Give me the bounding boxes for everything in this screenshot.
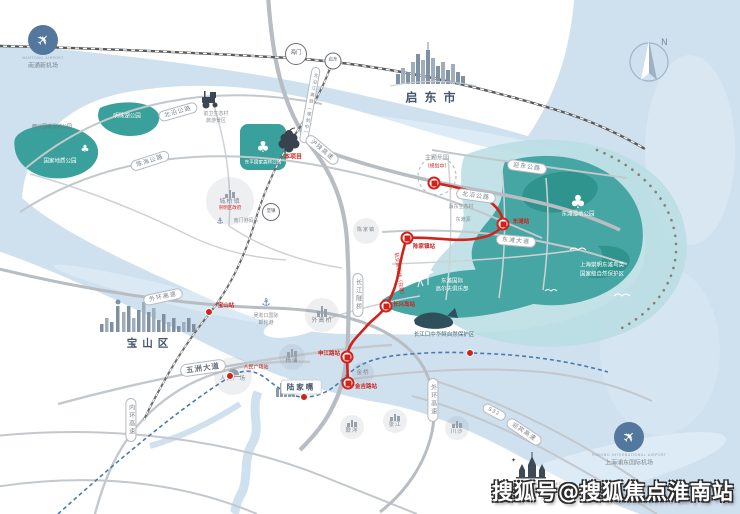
station-label: 申江路站 — [318, 351, 340, 357]
road-pill: 长江隧桥 — [352, 273, 363, 317]
metro-station-themepark — [428, 177, 441, 190]
pudong-airport-icon: ✈ — [614, 422, 644, 452]
metro-station-jinjilu — [342, 377, 355, 390]
station-qidong: 启东 — [325, 53, 342, 70]
tree-icon: ♣ — [81, 144, 90, 155]
town-baozhen: 堡镇 — [262, 203, 280, 221]
zone-label: 杨浦 — [285, 358, 298, 364]
qianwei-label-2: 旅游景区 — [206, 118, 226, 124]
wusongkou-label-2: 邮轮港 — [258, 320, 273, 326]
poi-dongtanyuan: 东滩源 — [455, 217, 470, 223]
zone-label: 川沙 — [450, 429, 463, 435]
pudong-airport-caps: PUDONG INTERNATIONAL AIRPORT — [592, 453, 667, 457]
project-label: 本项目 — [284, 155, 302, 162]
cruise-port-anchor-icon: ⚓ — [262, 298, 271, 309]
district-baoshan: 宝山区 — [127, 336, 174, 351]
qianwei-label-1: 前卫生态村 — [203, 111, 228, 117]
tree-icon: ♣ — [256, 138, 269, 156]
hsr-station-dot — [205, 308, 213, 316]
theme-park-label: 主题乐园 — [425, 154, 449, 161]
metro-dot — [226, 372, 234, 380]
zone-label: 金桥 — [356, 370, 369, 376]
zone-sublabel: 崇明区政府 — [219, 207, 242, 212]
nanmen-port-label: 南门港码头 — [233, 218, 258, 224]
poi-yingdong: 瀛东生态村 — [448, 204, 473, 210]
zone-label: 张江 — [388, 422, 401, 428]
compass-north-letter: N — [661, 38, 668, 48]
nantong-airport-caps: NANTONG AIRPORT — [22, 56, 64, 60]
buildings-icon — [317, 306, 327, 317]
lujiazui-label: 陆家嘴 — [281, 380, 322, 395]
reserve-label-1: 上海崇明东滩鸟类 — [580, 263, 624, 270]
station-haimen: 海门 — [285, 43, 307, 65]
zone-label: 联洋 — [345, 428, 358, 434]
station-label: 长兴岛站 — [393, 302, 415, 308]
zone-chuansha: 川沙 — [445, 416, 469, 440]
nanmen-port-anchor-icon: ⚓ — [216, 217, 223, 226]
metro-dot — [300, 393, 308, 401]
metro-dot — [466, 349, 474, 357]
park-label-xisha: 西沙国家湿地公园 — [32, 124, 72, 130]
pudong-airport-label: 上海浦东国际机场 — [605, 459, 653, 466]
location-map: ♣ ♣ ♣ ✦ — [0, 0, 740, 514]
buildings-icon — [347, 420, 357, 427]
metro-station-chenjiazhen — [401, 232, 414, 245]
nantong-airport-icon: ✈ — [28, 25, 58, 55]
reserve-label-2: 国家级自然保护区 — [580, 272, 624, 279]
park-label-dongtan-wetland: 东滩湿地公园 — [561, 212, 594, 219]
zone-label: 外高桥 — [311, 318, 332, 325]
theme-park-status: （规划中） — [424, 164, 449, 170]
road-pill: 内环高速 — [125, 398, 136, 442]
buildings-icon — [287, 349, 297, 357]
zone-jinqiao: 金桥 — [352, 362, 374, 384]
park-label-dongping: 东平国家森林公园 — [245, 160, 282, 166]
station-label: 人民广场站 — [243, 365, 268, 371]
zone-lianyang: 联洋 — [340, 415, 364, 439]
buildings-icon — [452, 421, 462, 428]
road-pill: 外环高速 — [427, 378, 438, 422]
station-label: 陈家镇站 — [413, 244, 435, 250]
watermark: 搜狐号@搜狐焦点淮南站 — [492, 476, 734, 506]
city-qidong: 启东市 — [405, 89, 462, 106]
park-label-mingzhu: 明珠湖公园 — [113, 114, 141, 121]
park-label-geo: 国家地质公园 — [43, 159, 76, 166]
hsr-baoshan-label: 宝山站 — [218, 303, 235, 309]
wusongkou-label-1: 吴淞口国际 — [253, 313, 278, 319]
golf-label-1: 东滩国际 — [441, 279, 463, 286]
zone-label: 陈家镇 — [357, 228, 375, 234]
tree-icon: ♣ — [570, 192, 586, 213]
zone-waigaoqiao: 外高桥 — [305, 298, 339, 332]
nantong-airport-label: 南通新机场 — [28, 62, 58, 69]
metro-station-dongtan — [497, 218, 510, 231]
zone-chenjiazhen: 陈家镇 — [353, 218, 379, 244]
zone-yangpu: 杨浦 — [279, 344, 305, 370]
plane-icon: ✈ — [618, 426, 640, 448]
svg-text:✦: ✦ — [511, 457, 516, 464]
station-label: 金吉路站 — [355, 384, 377, 390]
metro-station-shenjianglu — [341, 351, 354, 364]
sturgeon-reserve-label: 长江口中华鲟自然保护区 — [414, 330, 475, 338]
buildings-icon — [390, 414, 400, 421]
zone-zhangjiang: 张江 — [383, 409, 407, 433]
metro-station-changxingdao — [380, 300, 393, 313]
plane-icon: ✈ — [32, 29, 54, 51]
golf-label-2: 高尔夫俱乐部 — [435, 287, 468, 294]
station-label: 东滩站 — [513, 219, 530, 225]
